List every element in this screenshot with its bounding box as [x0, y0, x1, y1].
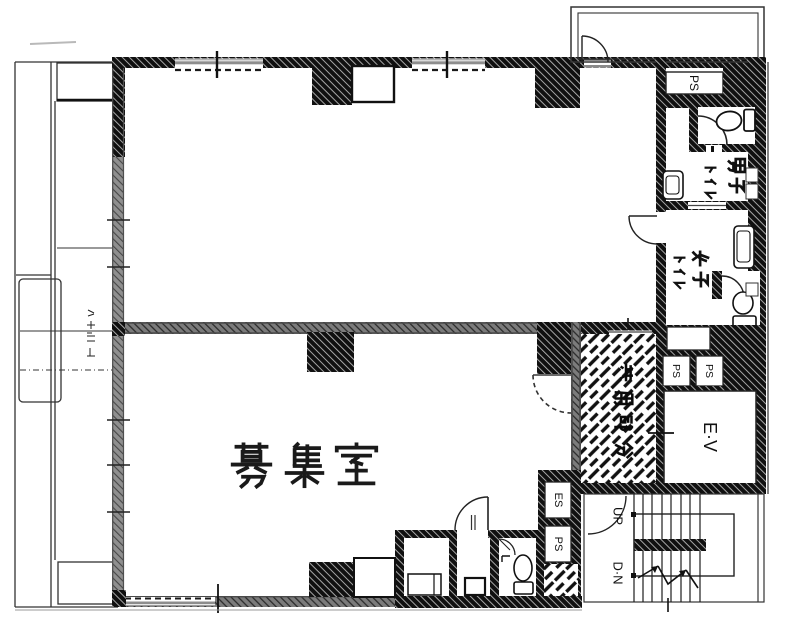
svg-text:PS: PS [687, 75, 701, 91]
svg-text:PS: PS [670, 364, 682, 378]
svg-text:PS: PS [703, 364, 715, 378]
svg-text:E·V: E·V [700, 422, 720, 452]
svg-text:UP: UP [611, 507, 626, 525]
svg-text:ES: ES [552, 493, 564, 508]
svg-text:D·N: D·N [611, 561, 626, 584]
svg-text:PS: PS [552, 537, 564, 552]
